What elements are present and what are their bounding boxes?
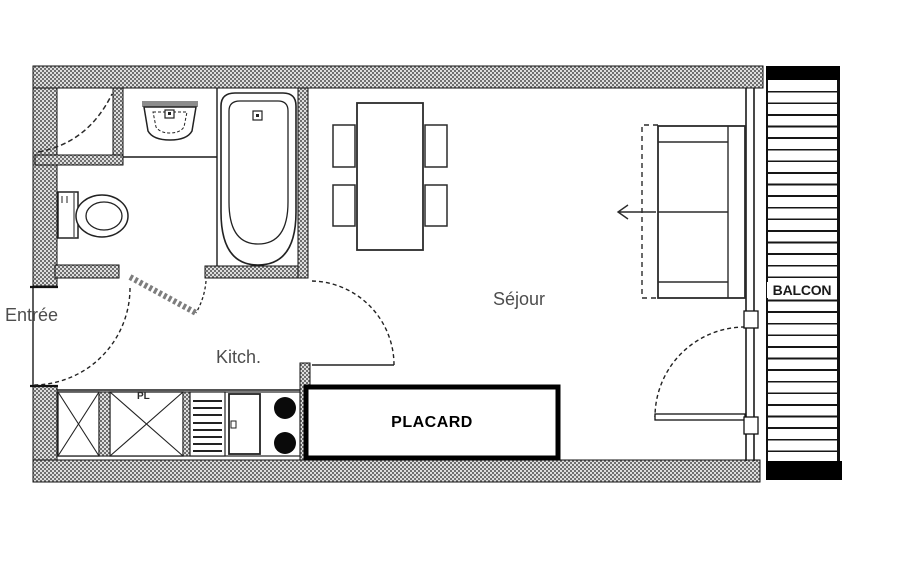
kitchen-counter — [57, 392, 300, 456]
cabinet-pl-label: PL — [137, 391, 150, 402]
bathroom-door-arc — [196, 281, 206, 313]
closet-bottom-wall — [35, 155, 123, 165]
dining-set — [333, 103, 447, 250]
chair — [333, 185, 355, 226]
bath-bottom-wall — [205, 266, 300, 278]
left-wall-upper — [33, 88, 57, 286]
balcony-door-frame — [744, 311, 758, 328]
placard-label: PLACARD — [306, 387, 558, 458]
balcony-door-frame — [744, 417, 758, 434]
chair — [425, 125, 447, 167]
entry-door-arc — [33, 288, 130, 385]
bathtub — [221, 93, 296, 265]
chair — [425, 185, 447, 226]
balcony-door-arc — [655, 327, 745, 417]
balcon-label: BALCON — [767, 282, 837, 298]
hob-burner — [274, 432, 296, 454]
chair — [333, 125, 355, 167]
pullout-arrow — [618, 205, 656, 219]
top-wall — [33, 66, 763, 88]
washbasin — [142, 101, 198, 140]
floor-plan-canvas: Entrée Kitch. Séjour PLACARD BALCON PL — [0, 0, 908, 575]
window-wall — [746, 88, 754, 461]
kitchen-door-arc — [312, 281, 394, 365]
dining-table — [357, 103, 423, 250]
bathroom-right-wall — [298, 88, 308, 278]
bottom-wall — [33, 460, 760, 482]
kitchen-label: Kitch. — [216, 348, 261, 368]
balcony-door-leaf — [655, 414, 745, 420]
toilet — [58, 192, 128, 238]
sejour-label: Séjour — [493, 290, 545, 310]
wc-bottom-wall — [55, 265, 119, 278]
hob-burner — [274, 397, 296, 419]
entree-label: Entrée — [5, 306, 58, 326]
sofa-bed — [618, 125, 745, 298]
bathroom-door-leaf — [130, 277, 196, 313]
entry-door-jambs — [30, 287, 58, 386]
closet-right-wall — [113, 88, 123, 158]
